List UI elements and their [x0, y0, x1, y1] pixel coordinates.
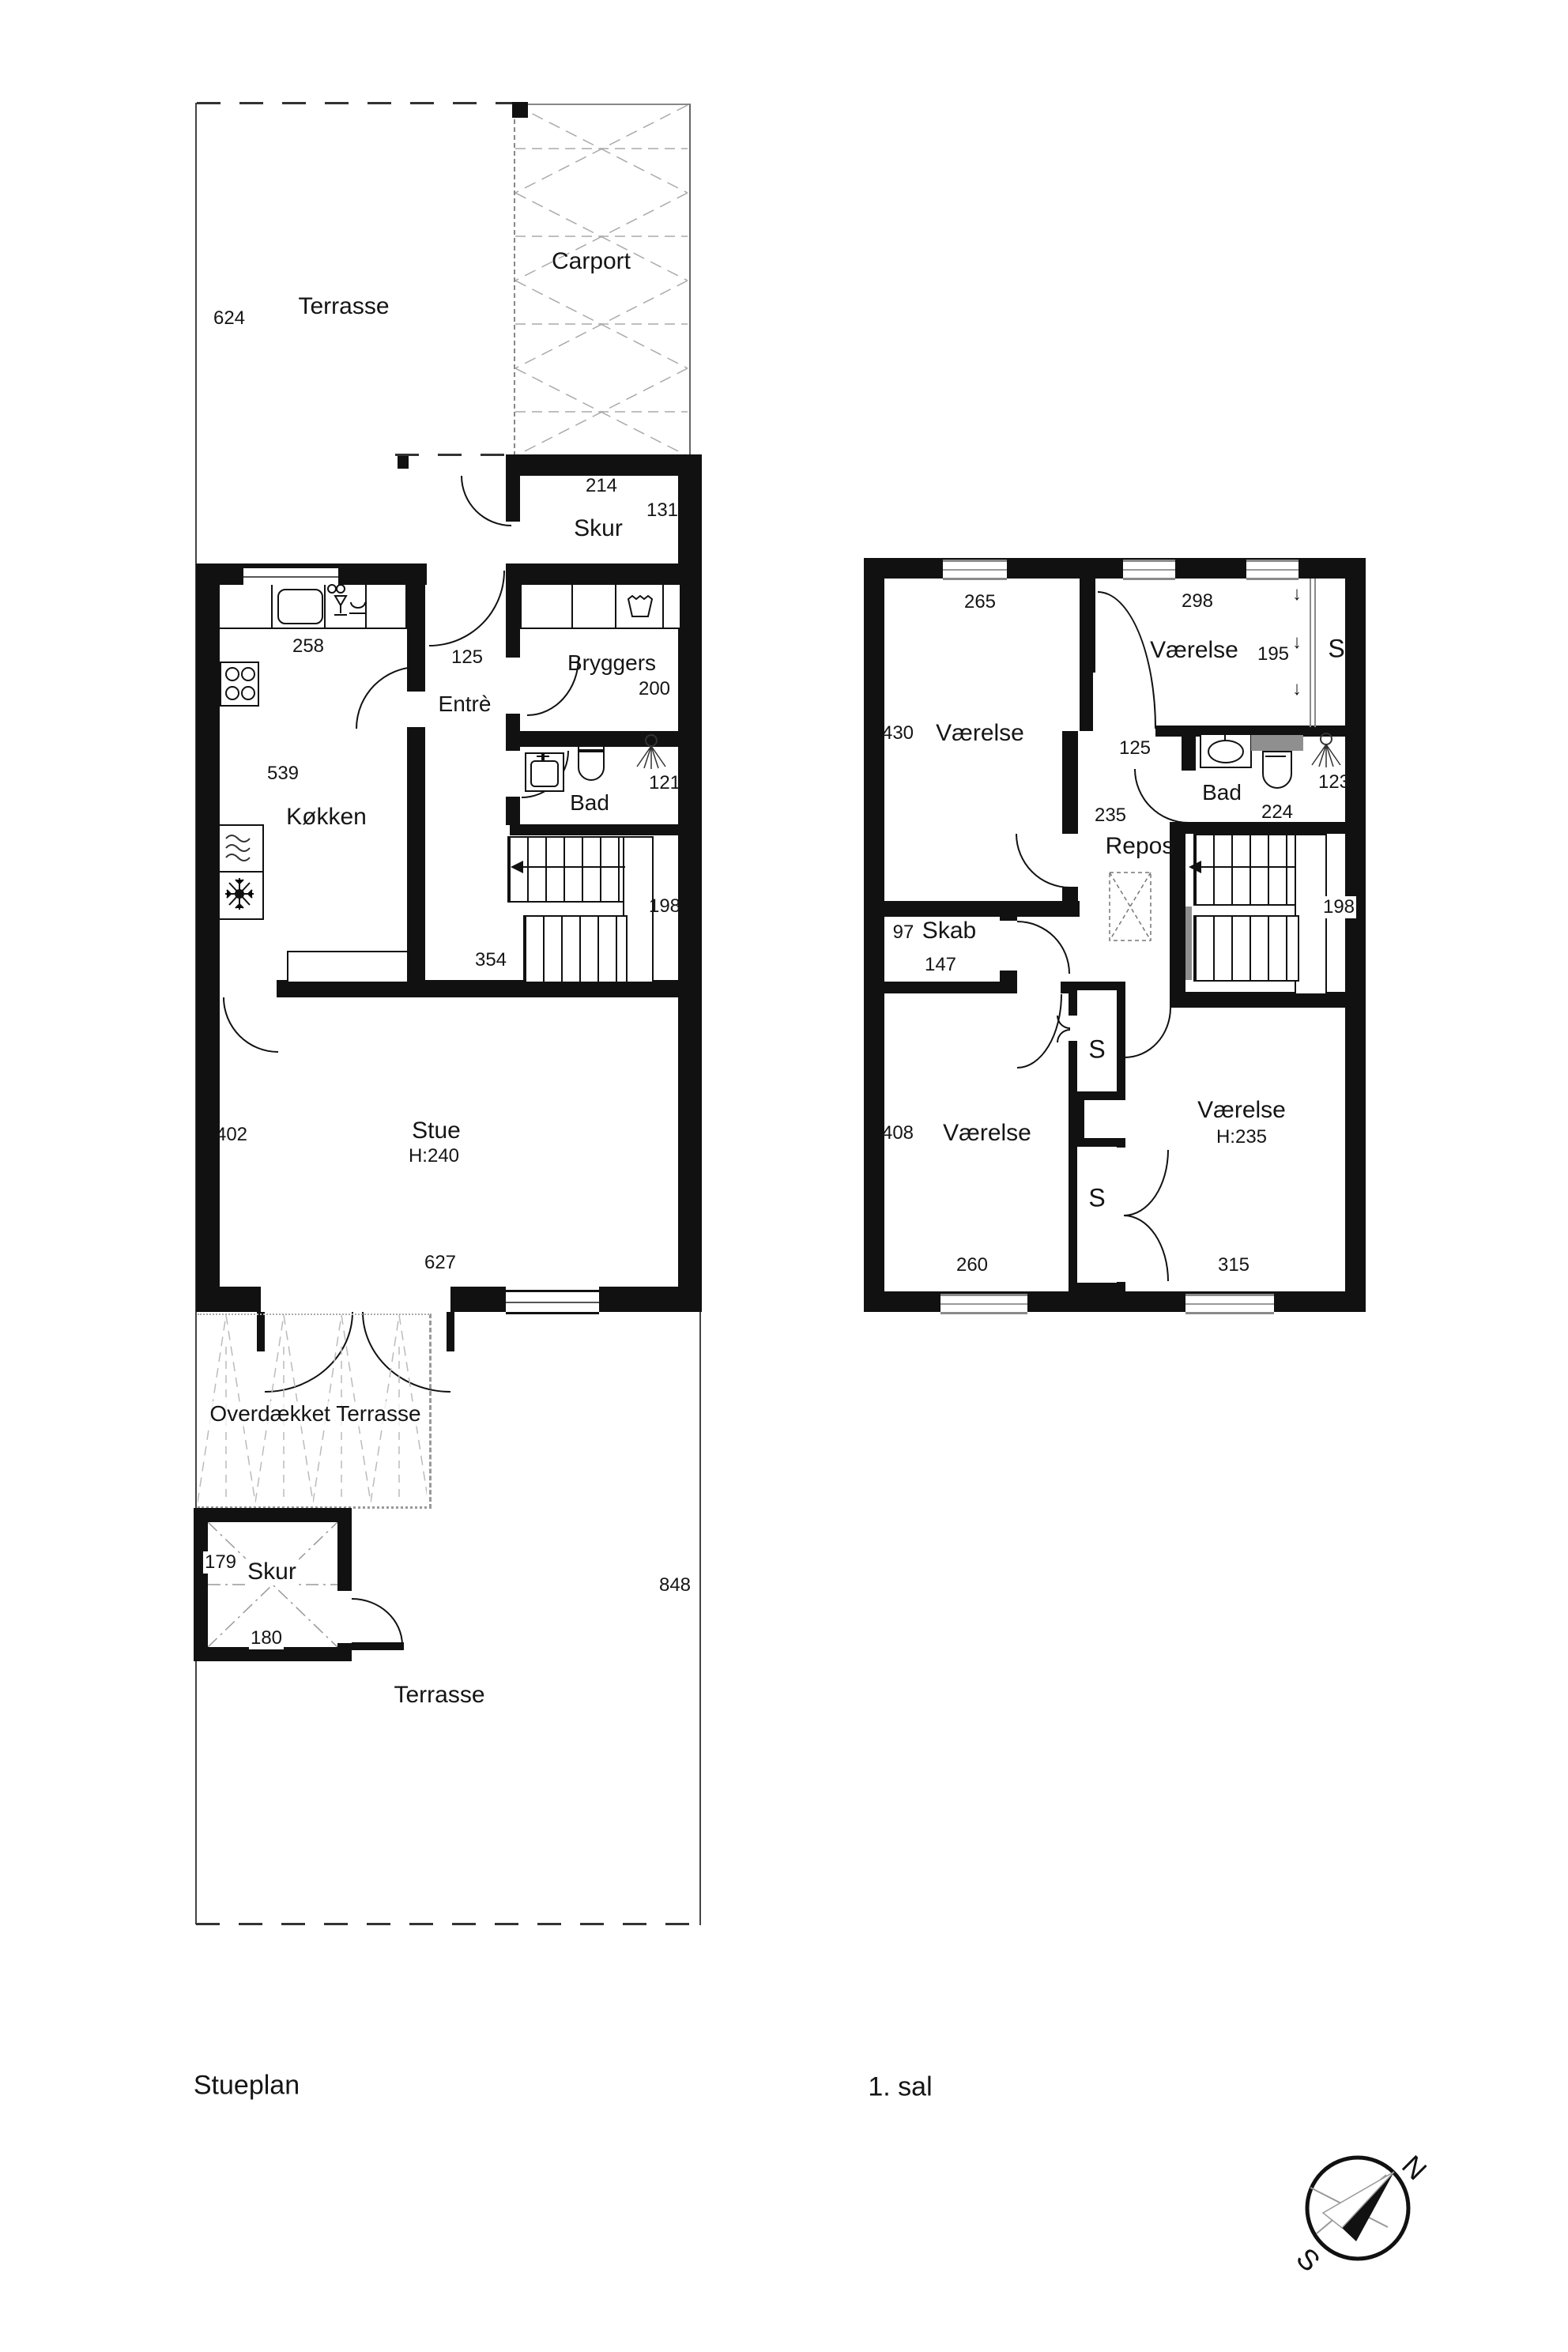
bad-first-label: Bad	[1202, 780, 1242, 805]
room-tr-label: Værelse	[1150, 637, 1238, 664]
skur-top-label: Skur	[574, 515, 623, 542]
skylight-icon	[1109, 872, 1151, 941]
door-arc-skab	[1017, 921, 1070, 974]
shower-icon	[1306, 732, 1347, 768]
carport-area	[514, 104, 691, 456]
toilet-icon	[1262, 751, 1292, 789]
stue-label: Stue	[412, 1118, 461, 1144]
slope-arrow-icon: ↓	[1292, 631, 1302, 654]
closet-door-arc	[1124, 1150, 1169, 1216]
room-bl-label: Værelse	[943, 1120, 1031, 1147]
terrasse-height-dim: 624	[213, 307, 245, 330]
terrasse-bottom-label: Terrasse	[394, 1682, 484, 1709]
covered-terrace-label: Overdækket Terrasse	[206, 1401, 424, 1427]
bifold-door-arc	[1057, 1029, 1070, 1042]
wall	[506, 454, 702, 476]
window	[1185, 1294, 1274, 1314]
counter-divider	[615, 585, 616, 628]
closet-tr-label: S	[1328, 635, 1344, 664]
wall	[506, 797, 520, 825]
wall	[1182, 735, 1196, 771]
freezer-icon	[218, 871, 264, 920]
wall	[407, 727, 425, 982]
counter-divider	[324, 585, 326, 628]
entre-label: Entrè	[439, 692, 492, 717]
skur-bottom-width-dim: 180	[249, 1627, 284, 1649]
door-arc-kitchen	[356, 666, 418, 729]
door-arc-skur	[352, 1598, 403, 1645]
room-tl-width-dim: 265	[964, 591, 996, 613]
bad-label: Bad	[570, 790, 609, 816]
kitchen-counter-dim: 258	[292, 635, 324, 658]
stove-icon	[220, 661, 259, 707]
stairs-edge-strip	[1185, 906, 1192, 980]
wall	[864, 982, 1017, 993]
kitchen-lower-counter	[287, 951, 409, 982]
kitchen-sink-icon	[277, 589, 323, 624]
wall	[599, 1287, 702, 1312]
door-arc-room-tl	[1016, 834, 1070, 888]
closet-mid-lower-label: S	[1088, 1184, 1105, 1213]
wall	[1069, 1100, 1084, 1138]
door-arc-bad-first	[1134, 769, 1189, 824]
door-arc-stue-opening	[223, 997, 278, 1053]
carport-corner-post	[512, 102, 528, 118]
oven-icon	[218, 824, 264, 874]
floorplan-page: Terrasse 624 Carport 214 131 Skur	[0, 0, 1568, 2352]
passage-width-dim: 125	[1119, 737, 1151, 759]
kitchen-height-dim: 539	[267, 763, 299, 785]
door-arc-entrance	[461, 476, 511, 526]
wall	[864, 558, 884, 1312]
closet-divider-line	[1310, 579, 1311, 727]
room-tl-height-dim: 430	[882, 722, 914, 744]
wall	[398, 456, 409, 469]
wall	[1000, 971, 1017, 982]
stairs-lower-flight	[523, 915, 628, 983]
window	[943, 560, 1007, 580]
skab-label: Skab	[922, 918, 976, 944]
carport-label: Carport	[552, 248, 631, 275]
room-tr-width-dim: 298	[1182, 590, 1213, 612]
counter-divider	[662, 585, 664, 628]
compass-south-label: S	[1290, 2241, 1326, 2275]
door-arc-room-tr	[1098, 591, 1156, 729]
stairs-direction-arrow	[1189, 858, 1299, 876]
wall	[1000, 910, 1017, 921]
wall	[1062, 887, 1078, 901]
toilet-cistern	[1251, 735, 1303, 751]
skur-door-opening	[337, 1591, 352, 1643]
wall	[864, 1291, 1366, 1312]
wall	[1062, 731, 1078, 834]
door-arc-room-bl	[1017, 994, 1062, 1069]
slope-arrow-icon: ↓	[1292, 583, 1302, 605]
skur-top-width-dim: 214	[586, 475, 617, 497]
room-br-label: Værelse	[1197, 1097, 1286, 1124]
wall	[864, 901, 1080, 917]
bad-width-dim: 121	[649, 772, 680, 794]
wall	[1345, 558, 1366, 1312]
window	[506, 1290, 599, 1314]
stairs-direction-arrow	[511, 858, 629, 876]
stue-width-dim: 627	[424, 1252, 456, 1274]
lot-line-right	[699, 1312, 701, 1925]
skab-height-dim: 97	[893, 922, 914, 944]
lot-line-top	[197, 102, 513, 104]
bad-first-depth-dim: 123	[1318, 771, 1350, 793]
door-arc-room-br	[1125, 1008, 1171, 1058]
wall	[1170, 992, 1366, 1008]
first-plan-title: 1. sal	[868, 2072, 932, 2103]
stairs-first-width-dim: 198	[1321, 896, 1356, 918]
bryggers-width-dim: 200	[639, 678, 670, 700]
room-tl-label: Værelse	[936, 720, 1024, 747]
wall	[506, 563, 702, 585]
repos-label: Repos	[1106, 833, 1174, 860]
ground-plan-title: Stueplan	[194, 2071, 300, 2101]
repos-width-dim: 235	[1095, 805, 1126, 827]
room-bl-height-dim: 408	[882, 1122, 914, 1144]
compass-rose: N S	[1287, 2132, 1429, 2275]
wall	[1080, 668, 1093, 731]
carport-hatch	[515, 105, 688, 454]
bifold-door-arc	[1057, 1016, 1070, 1029]
wall	[1080, 558, 1095, 673]
wall	[196, 563, 220, 1312]
room-bl-width-dim: 260	[956, 1254, 988, 1276]
skur-top-height-dim: 131	[646, 499, 678, 522]
stue-height-dim: 402	[216, 1124, 247, 1146]
counter-divider	[571, 585, 573, 628]
room-br-width-dim: 315	[1218, 1254, 1249, 1276]
skur-bottom-height-dim: 179	[203, 1551, 238, 1574]
entre-width-dim: 125	[451, 646, 483, 669]
bryggers-counter	[520, 585, 680, 629]
hall-width-dim: 354	[475, 949, 507, 971]
stue-ceiling-height: H:240	[409, 1145, 459, 1167]
wall	[510, 824, 702, 835]
room-br-ceiling-height: H:235	[1216, 1126, 1267, 1148]
skab-width-dim: 147	[925, 954, 956, 976]
shower-icon	[631, 733, 672, 770]
bathroom-sink-icon	[525, 752, 564, 792]
lot-right-dim: 848	[659, 1574, 691, 1596]
wall	[1170, 822, 1366, 834]
counter-divider	[271, 585, 273, 628]
counter-knob-icon	[336, 584, 345, 594]
window	[940, 1294, 1027, 1314]
wall	[450, 1287, 506, 1312]
slope-arrow-icon: ↓	[1292, 678, 1302, 700]
closet-door-arc	[1124, 1215, 1169, 1281]
lot-line-alcove	[395, 454, 506, 456]
window	[1123, 560, 1175, 580]
dishwasher-icon	[329, 590, 367, 624]
wall	[196, 1287, 261, 1312]
room-tr-depth-dim: 195	[1257, 643, 1289, 665]
skur-bottom-label: Skur	[245, 1559, 299, 1585]
washing-machine-icon	[624, 591, 656, 623]
stairs-lower-flight	[1193, 915, 1299, 982]
wall	[506, 585, 520, 658]
wall	[678, 454, 702, 1312]
terrasse-top-label: Terrasse	[298, 293, 389, 320]
bryggers-label: Bryggers	[567, 650, 656, 676]
closet-mid-upper-label: S	[1088, 1035, 1105, 1065]
kitchen-label: Køkken	[286, 804, 367, 831]
lot-line-bottom	[196, 1923, 701, 1925]
bathroom-sink-icon	[1200, 735, 1252, 768]
bad-first-width-dim: 224	[1261, 801, 1293, 824]
kitchen-counter	[220, 585, 407, 629]
stairs-width-dim: 198	[649, 895, 680, 918]
door-arc-entre	[429, 571, 505, 646]
toilet-icon	[578, 737, 605, 781]
window	[1246, 560, 1298, 580]
closet-divider-line	[1314, 579, 1316, 727]
